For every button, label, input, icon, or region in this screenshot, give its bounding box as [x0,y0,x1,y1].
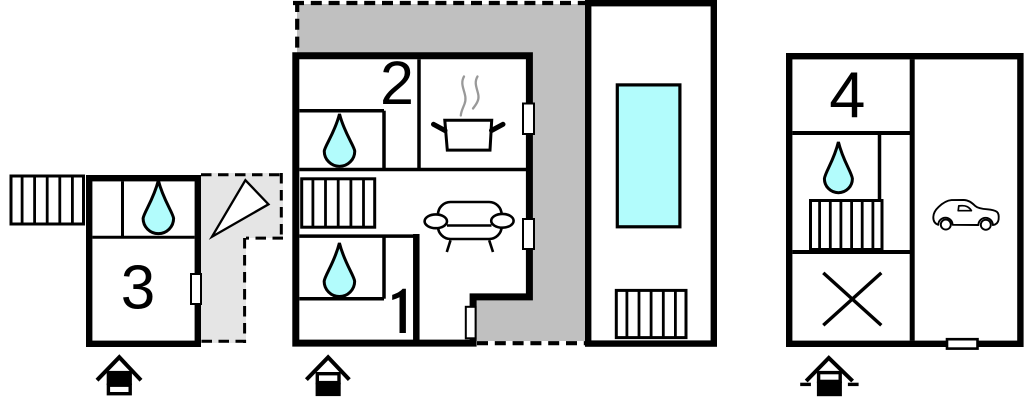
svg-text:3: 3 [121,254,155,323]
svg-text:2: 2 [380,49,414,117]
svg-text:4: 4 [829,58,865,131]
